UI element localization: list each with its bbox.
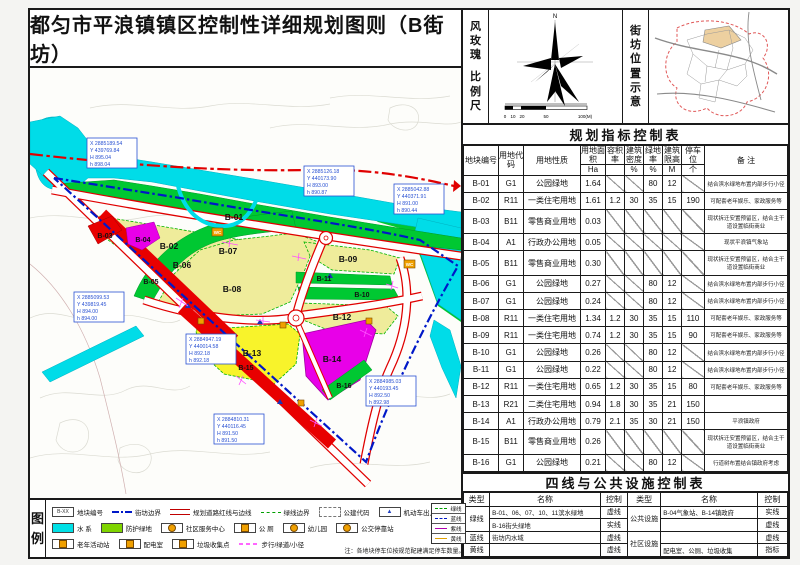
public-facility-ctrl-2: 虚线 <box>757 519 787 532</box>
land-code: G1 <box>499 454 524 471</box>
density-value <box>625 361 644 378</box>
indicator-row: B-07 G1 公园绿地 0.24 80 12 结合滨水绿地布置内部步行小径 <box>464 292 788 309</box>
green-line-sample <box>435 508 447 509</box>
plot-id: B-10 <box>464 344 499 361</box>
density-value <box>625 234 644 251</box>
svg-text:H 891.00: H 891.00 <box>397 201 418 207</box>
land-area: 0.65 <box>581 378 606 395</box>
svg-text:X 2884810.31: X 2884810.31 <box>217 417 249 423</box>
land-code: R21 <box>499 395 524 412</box>
parking-value <box>682 175 705 192</box>
kindergarten-icon <box>283 523 305 533</box>
plot-id: B-13 <box>464 395 499 412</box>
svg-text:X 2885189.54: X 2885189.54 <box>90 141 122 147</box>
height-limit-value: 15 <box>663 310 682 327</box>
unit-height: M <box>663 165 682 175</box>
green-rate-value <box>644 234 663 251</box>
green-rate-value <box>644 430 663 454</box>
block-boundary-swatch <box>112 511 132 513</box>
indicator-row: B-05 B11 零售商业用地 0.30 现状拆迁安置预留区，结合主干道设置临街… <box>464 251 788 275</box>
scale-label: 比例尺 <box>469 70 482 113</box>
legend-label: 公建代码 <box>344 507 370 517</box>
far-value <box>606 454 625 471</box>
blue-line-name: 街坊内水域 <box>490 531 601 544</box>
wind-rose-svg: N 0 <box>489 10 622 123</box>
land-code: A1 <box>499 234 524 251</box>
mini-row-green-line: 绿线 <box>432 504 464 514</box>
public-toilet-icon <box>234 523 256 533</box>
indicator-row: B-02 R11 一类住宅用地 1.61 1.2 30 35 15 190 可配… <box>464 192 788 209</box>
svg-text:B-13: B-13 <box>243 348 262 358</box>
far-value <box>606 209 625 233</box>
svg-text:B-09: B-09 <box>339 254 358 264</box>
building-code-swatch <box>319 507 341 517</box>
height-limit-value: 15 <box>663 378 682 395</box>
legend-label: 街坊边界 <box>135 507 161 517</box>
far-value: 1.2 <box>606 327 625 344</box>
lines-row: B-16街头绿地 实线 虚线 <box>464 519 788 532</box>
land-area: 0.79 <box>581 413 606 430</box>
land-area: 0.30 <box>581 251 606 275</box>
svg-text:B-02: B-02 <box>160 241 179 251</box>
plot-id: B-16 <box>464 454 499 471</box>
legend-item-garbage-point: 垃圾收集点 <box>172 539 230 549</box>
col-name: 名称 <box>490 493 601 507</box>
svg-text:X 2885099.53: X 2885099.53 <box>77 295 109 301</box>
parking-value: 150 <box>682 395 705 412</box>
plot-id: B-02 <box>464 192 499 209</box>
parking-value: 80 <box>682 378 705 395</box>
lines-table: 类型 名称 控制 类型 名称 控制 绿线 B-01、06、07、10、11滨水绿… <box>463 492 788 557</box>
legend-item-green-line: 绿线边界 <box>261 507 310 517</box>
green-line-ctrl-1: 虚线 <box>600 506 627 519</box>
community-facility-type: 社区设施 <box>627 531 660 556</box>
land-nature: 零售商业用地 <box>524 251 581 275</box>
density-value <box>625 344 644 361</box>
far-value: 1.2 <box>606 192 625 209</box>
yellow-line-sample <box>435 538 447 539</box>
green-line-name-1: B-01、06、07、10、11滨水绿地 <box>490 506 601 519</box>
land-nature: 行政办公用地 <box>524 234 581 251</box>
far-value <box>606 251 625 275</box>
wc-marker: WC <box>404 260 415 268</box>
land-area: 0.21 <box>581 454 606 471</box>
far-value <box>606 234 625 251</box>
svg-text:Y 439769.84: Y 439769.84 <box>90 148 119 154</box>
legend-item-kindergarten: 幼儿园 <box>283 523 328 533</box>
height-limit-value: 12 <box>663 344 682 361</box>
sheet-title: 都匀市平浪镇镇区控制性详细规划图则（B街坊） <box>30 9 461 67</box>
density-value <box>625 251 644 275</box>
green-rate-value: 80 <box>644 175 663 192</box>
svg-text:X 2885126.18: X 2885126.18 <box>307 169 339 175</box>
col-far: 容积率 <box>606 146 625 165</box>
power-room-icon <box>119 539 141 549</box>
legend-label: 配电室 <box>144 539 164 549</box>
windrose-label: 风玫瑰 <box>469 20 482 63</box>
col-parking: 停车位 <box>682 146 705 165</box>
svg-text:20: 20 <box>519 114 525 119</box>
density-value: 35 <box>625 413 644 430</box>
left-panel: 都匀市平浪镇镇区控制性详细规划图则（B街坊） <box>30 10 463 557</box>
land-code: G1 <box>499 175 524 192</box>
svg-text:B-11: B-11 <box>317 276 332 283</box>
garbage-point-icon <box>172 539 194 549</box>
density-value: 30 <box>625 395 644 412</box>
legend-items: B-XX地块编号 街坊边界 规划道路红线与边线 绿线边界 公建代码 ▲机动车出入… <box>46 500 469 557</box>
height-limit-value <box>663 430 682 454</box>
remark-text <box>705 395 788 412</box>
density-value <box>625 209 644 233</box>
parking-value <box>682 361 705 378</box>
mini-row-label: 黄线 <box>450 535 461 543</box>
plot-id: B-09 <box>464 327 499 344</box>
plot-id: B-11 <box>464 361 499 378</box>
land-code: B11 <box>499 430 524 454</box>
indicator-row: B-01 G1 公园绿地 1.64 80 12 结合滨水绿地布置内部步行小径 <box>464 175 788 192</box>
road-redline-swatch <box>170 509 190 515</box>
svg-text:100(M): 100(M) <box>578 114 593 119</box>
svg-text:h 892.18: h 892.18 <box>189 358 209 364</box>
legend-item-plot-code: B-XX地块编号 <box>52 507 103 517</box>
land-area: 1.64 <box>581 175 606 192</box>
legend-label: 防护绿地 <box>126 523 152 533</box>
lines-row: 绿线 B-01、06、07、10、11滨水绿地 虚线 公共设施 B-04气象站、… <box>464 506 788 519</box>
svg-text:Y 439819.45: Y 439819.45 <box>77 302 106 308</box>
lines-row: 蓝线 街坊内水域 虚线 社区设施 虚线 <box>464 531 788 544</box>
land-nature: 公园绿地 <box>524 175 581 192</box>
green-rate-value: 35 <box>644 310 663 327</box>
remark-text: 结合滨水绿地布置内部步行小径 <box>705 275 788 292</box>
density-value: 30 <box>625 327 644 344</box>
community-center-icon <box>161 523 183 533</box>
legend-label: 公交停靠站 <box>361 523 394 533</box>
col-area: 用地面积 <box>581 146 606 165</box>
svg-text:X 2884947.19: X 2884947.19 <box>189 337 221 343</box>
legend-item-public-toilet: 公 厕 <box>234 523 274 533</box>
land-code: B11 <box>499 251 524 275</box>
land-nature: 零售商业用地 <box>524 430 581 454</box>
svg-text:B-16: B-16 <box>336 383 351 390</box>
height-limit-value: 21 <box>663 395 682 412</box>
indicator-row: B-10 G1 公园绿地 0.26 80 12 结合滨水绿地布置内部步行小径 <box>464 344 788 361</box>
land-nature: 一类住宅用地 <box>524 310 581 327</box>
legend-item-water: 水 系 <box>52 523 92 533</box>
water-swatch <box>52 523 74 533</box>
land-nature: 行政办公用地 <box>524 413 581 430</box>
green-rate-value <box>644 209 663 233</box>
legend-item-block-boundary: 街坊边界 <box>112 507 161 517</box>
land-nature: 公园绿地 <box>524 454 581 471</box>
mini-row-label: 绿线 <box>450 505 461 513</box>
land-nature: 公园绿地 <box>524 292 581 309</box>
plot-id: B-06 <box>464 275 499 292</box>
scale-bar: 0 10 20 50 100(M) <box>504 104 593 119</box>
far-value <box>606 175 625 192</box>
wind-rose: N 0 <box>489 10 623 123</box>
height-limit-value: 15 <box>663 192 682 209</box>
plot-id: B-01 <box>464 175 499 192</box>
green-swatch <box>101 523 123 533</box>
windrose-label-cell: 风玫瑰 比例尺 <box>463 10 489 123</box>
green-line-name-2: B-16街头绿地 <box>490 519 601 532</box>
far-value: 1.8 <box>606 395 625 412</box>
density-value <box>625 454 644 471</box>
plot-id: B-12 <box>464 378 499 395</box>
svg-text:B-12: B-12 <box>333 312 352 322</box>
svg-text:h 894.00: h 894.00 <box>77 316 97 322</box>
col-name: 名称 <box>661 493 758 507</box>
height-limit-value <box>663 209 682 233</box>
unit-far <box>606 165 625 175</box>
green-line-ctrl-2: 实线 <box>600 519 627 532</box>
community-facility-name-1 <box>661 531 758 544</box>
legend-item-elderly-center: 老年活动站 <box>52 539 110 549</box>
remark-text: 可配套老年娱乐、家政服务等 <box>705 310 788 327</box>
remark-text: 可配套老年娱乐、家政服务等 <box>705 327 788 344</box>
col-density: 建筑密度 <box>625 146 644 165</box>
zoning-map: WC WC <box>30 68 461 498</box>
far-value <box>606 275 625 292</box>
land-nature: 零售商业用地 <box>524 209 581 233</box>
svg-text:H 892.50: H 892.50 <box>369 393 390 399</box>
svg-text:H 895.04: H 895.04 <box>90 155 111 161</box>
far-value: 2.1 <box>606 413 625 430</box>
unit-density: % <box>625 165 644 175</box>
parking-note: 注：各地块停车位按规范配建满足停车数量。 <box>344 546 464 555</box>
location-label-cell: 街坊位置示意 <box>623 10 649 123</box>
indicator-table-title: 规划指标控制表 <box>463 125 788 145</box>
svg-text:B-08: B-08 <box>223 284 242 294</box>
col-remark: 备 注 <box>705 146 788 176</box>
svg-text:B-04: B-04 <box>135 237 150 244</box>
svg-text:Y 440173.90: Y 440173.90 <box>307 176 336 182</box>
land-code: G1 <box>499 275 524 292</box>
land-area: 0.26 <box>581 430 606 454</box>
parking-value: 150 <box>682 413 705 430</box>
density-value: 30 <box>625 192 644 209</box>
legend-row: B-XX地块编号 街坊边界 规划道路红线与边线 绿线边界 公建代码 ▲机动车出入… <box>52 504 465 520</box>
land-code: R11 <box>499 192 524 209</box>
legend-item-power-room: 配电室 <box>119 539 164 549</box>
legend-item-road-redline: 规划道路红线与边线 <box>170 507 252 517</box>
far-value <box>606 344 625 361</box>
legend-item-bus-stop: 公交停靠站 <box>336 523 394 533</box>
legend-item-protective-green: 防护绿地 <box>101 523 152 533</box>
legend: 图例 B-XX地块编号 街坊边界 规划道路红线与边线 绿线边界 公建代码 ▲机动… <box>30 498 461 557</box>
land-area: 0.24 <box>581 292 606 309</box>
legend-label: 规划道路红线与边线 <box>193 507 252 517</box>
remark-text: 行道树布置结合镇政府考虑 <box>705 454 788 471</box>
plot-id: B-14 <box>464 413 499 430</box>
indicator-row: B-04 A1 行政办公用地 0.05 现状平浪镇气象站 <box>464 234 788 251</box>
parking-value: 90 <box>682 327 705 344</box>
mini-row-yellow-line: 黄线 <box>432 534 464 543</box>
legend-row: 水 系 防护绿地 社区服务中心 公 厕 幼儿园 公交停靠站 <box>52 520 465 536</box>
remark-text: 现状拆迁安置预留区，结合主干道设置临街商业 <box>705 430 788 454</box>
lines-table-title: 四线与公共设施控制表 <box>463 474 788 492</box>
col-ctrl: 控制 <box>600 493 627 507</box>
svg-text:N: N <box>553 14 557 20</box>
remark-text: 可配套老年娱乐、家政服务等 <box>705 378 788 395</box>
legend-item-building-code: 公建代码 <box>319 507 370 517</box>
green-rate-value: 35 <box>644 378 663 395</box>
land-area: 0.03 <box>581 209 606 233</box>
density-value: 30 <box>625 378 644 395</box>
indicator-row: B-14 A1 行政办公用地 0.79 2.1 35 30 21 150 平浪镇… <box>464 413 788 430</box>
svg-text:B-01: B-01 <box>225 212 244 222</box>
green-rate-value: 35 <box>644 327 663 344</box>
density-value <box>625 430 644 454</box>
land-code: G1 <box>499 292 524 309</box>
height-limit-value <box>663 234 682 251</box>
green-rate-value: 80 <box>644 454 663 471</box>
density-value: 30 <box>625 310 644 327</box>
four-lines-mini-table: 绿线 蓝线 紫线 黄线 <box>431 503 465 544</box>
green-rate-value: 35 <box>644 395 663 412</box>
mini-row-label: 蓝线 <box>450 515 461 523</box>
density-value <box>625 275 644 292</box>
svg-text:Y 440014.58: Y 440014.58 <box>189 344 218 350</box>
parking-value <box>682 251 705 275</box>
svg-text:Y 440193.45: Y 440193.45 <box>369 386 398 392</box>
land-code: B11 <box>499 209 524 233</box>
land-nature: 公园绿地 <box>524 344 581 361</box>
legend-label: 老年活动站 <box>77 539 110 549</box>
location-map-svg <box>649 10 780 123</box>
legend-label: 垃圾收集点 <box>197 539 230 549</box>
location-label: 街坊位置示意 <box>629 24 642 110</box>
entrance-icon: ▲ <box>379 507 401 517</box>
land-code: A1 <box>499 413 524 430</box>
block-location-map <box>649 10 788 123</box>
wind-rose-petals <box>523 22 583 106</box>
legend-label: 幼儿园 <box>308 523 328 533</box>
svg-text:h 890.44: h 890.44 <box>397 208 417 214</box>
public-facility-type: 公共设施 <box>627 506 660 531</box>
land-nature: 公园绿地 <box>524 361 581 378</box>
land-nature: 公园绿地 <box>524 275 581 292</box>
land-nature: 一类住宅用地 <box>524 327 581 344</box>
remark-text: 可配套老年娱乐、家政服务等 <box>705 192 788 209</box>
svg-text:Y 440116.45: Y 440116.45 <box>217 424 246 430</box>
col-nature: 用地性质 <box>524 146 581 176</box>
yellow-line-name <box>490 544 601 557</box>
parking-value <box>682 292 705 309</box>
purple-line-sample <box>435 528 447 529</box>
blue-line-ctrl: 虚线 <box>600 531 627 544</box>
height-limit-value: 15 <box>663 327 682 344</box>
community-facility-ctrl-1: 虚线 <box>757 531 787 544</box>
far-value: 1.2 <box>606 310 625 327</box>
indicator-table-body: B-01 G1 公园绿地 1.64 80 12 结合滨水绿地布置内部步行小径 <box>464 175 788 471</box>
legend-label: 社区服务中心 <box>186 523 225 533</box>
remark-text: 现状平浪镇气象站 <box>705 234 788 251</box>
bus-stop-icon <box>336 523 358 533</box>
legend-label: 公 厕 <box>259 523 274 533</box>
remark-text: 现状拆迁安置预留区，结合主干道设置临街商业 <box>705 209 788 233</box>
height-limit-value: 12 <box>663 361 682 378</box>
remark-text: 平浪镇政府 <box>705 413 788 430</box>
green-rate-value: 80 <box>644 275 663 292</box>
legend-title: 图例 <box>30 509 45 548</box>
unit-parking: 个 <box>682 165 705 175</box>
green-rate-value: 35 <box>644 192 663 209</box>
plot-id: B-04 <box>464 234 499 251</box>
yellow-line-ctrl: 虚线 <box>600 544 627 557</box>
land-code: R11 <box>499 378 524 395</box>
remark-text: 结合滨水绿地布置内部步行小径 <box>705 361 788 378</box>
mini-row-label: 紫线 <box>450 525 461 533</box>
col-ctrl: 控制 <box>757 493 787 507</box>
col-green: 绿地率 <box>644 146 663 165</box>
height-limit-value: 12 <box>663 292 682 309</box>
svg-text:X 2885042.88: X 2885042.88 <box>397 187 429 193</box>
col-height: 建筑限高 <box>663 146 682 165</box>
svg-text:B-14: B-14 <box>323 354 342 364</box>
public-facility-ctrl-1: 实线 <box>757 506 787 519</box>
indicator-row: B-12 R11 一类住宅用地 0.65 1.2 30 35 15 80 可配套… <box>464 378 788 395</box>
community-facility-ctrl-2: 指标 <box>757 544 787 557</box>
svg-text:B-15: B-15 <box>238 365 253 372</box>
blue-line-sample <box>435 518 447 519</box>
svg-text:H 891.50: H 891.50 <box>217 431 238 437</box>
height-limit-value: 12 <box>663 454 682 471</box>
title-block: 都匀市平浪镇镇区控制性详细规划图则（B街坊） <box>30 10 461 68</box>
green-rate-value: 80 <box>644 361 663 378</box>
svg-text:WC: WC <box>406 262 414 267</box>
land-area: 0.94 <box>581 395 606 412</box>
svg-text:WC: WC <box>214 230 222 235</box>
svg-text:B-07: B-07 <box>219 246 238 256</box>
parking-value <box>682 275 705 292</box>
col-type: 类型 <box>627 493 660 507</box>
legend-label: 地块编号 <box>77 507 103 517</box>
far-value <box>606 430 625 454</box>
svg-text:H 893.00: H 893.00 <box>307 183 328 189</box>
svg-text:H 894.00: H 894.00 <box>77 309 98 315</box>
indicator-row: B-13 R21 二类住宅用地 0.94 1.8 30 35 21 150 <box>464 395 788 412</box>
top-info-row: 风玫瑰 比例尺 N <box>463 10 788 125</box>
land-code: G1 <box>499 361 524 378</box>
indicator-row: B-08 R11 一类住宅用地 1.34 1.2 30 35 15 110 可配… <box>464 310 788 327</box>
public-facility-name-2 <box>661 519 758 532</box>
legend-label: 步行/绿道/小径 <box>262 539 305 549</box>
height-limit-value <box>663 251 682 275</box>
parking-value <box>682 209 705 233</box>
legend-item-community-center: 社区服务中心 <box>161 523 225 533</box>
parking-value: 110 <box>682 310 705 327</box>
green-rate-value: 80 <box>644 344 663 361</box>
highlighted-block <box>703 26 741 48</box>
indicator-row: B-03 B11 零售商业用地 0.03 现状拆迁安置预留区，结合主干道设置临街… <box>464 209 788 233</box>
land-area: 0.27 <box>581 275 606 292</box>
land-nature: 一类住宅用地 <box>524 192 581 209</box>
remark-text: 结合滨水绿地布置内部步行小径 <box>705 344 788 361</box>
right-panel: 风玫瑰 比例尺 N <box>463 10 788 557</box>
density-value <box>625 175 644 192</box>
plot-id: B-07 <box>464 292 499 309</box>
community-facility-name-2: 配电室、公厕、垃圾收集 <box>661 544 758 557</box>
land-area: 0.74 <box>581 327 606 344</box>
svg-text:h 890.87: h 890.87 <box>307 190 327 196</box>
greenway-swatch <box>239 543 259 545</box>
land-area: 0.26 <box>581 344 606 361</box>
elderly-center-icon <box>52 539 74 549</box>
svg-text:X 2884985.03: X 2884985.03 <box>369 379 401 385</box>
plot-id: B-15 <box>464 430 499 454</box>
land-nature: 一类住宅用地 <box>524 378 581 395</box>
